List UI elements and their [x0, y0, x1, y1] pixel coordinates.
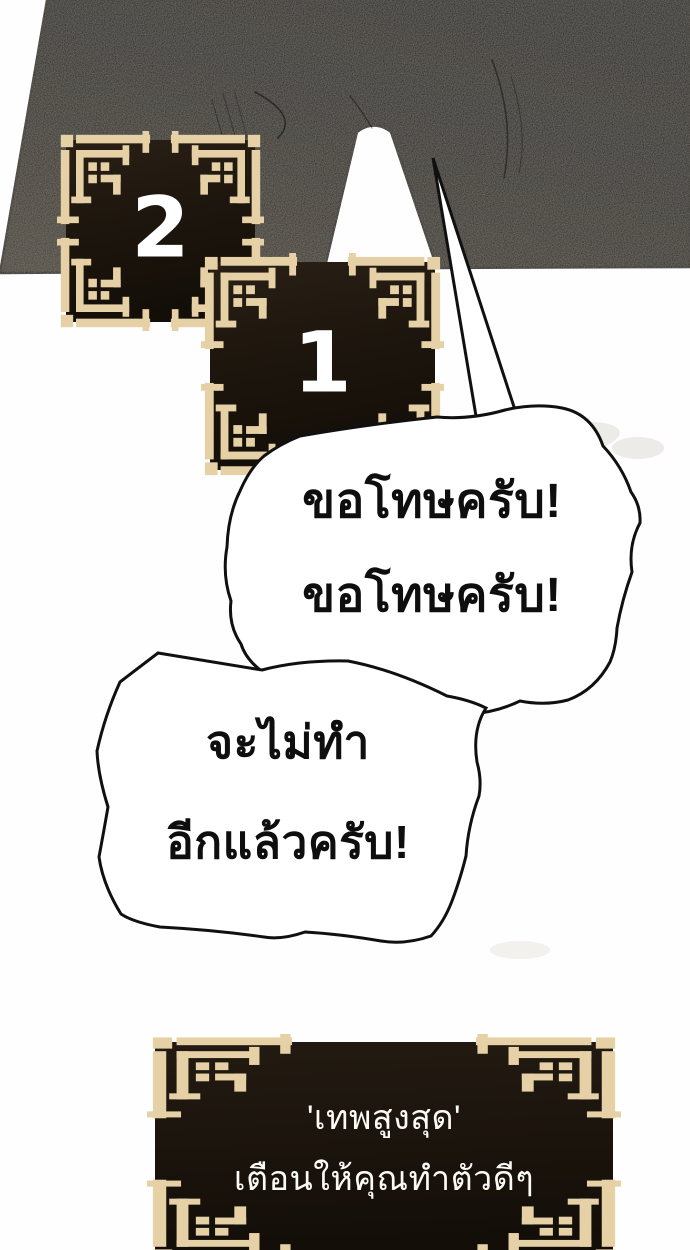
- speech-bubble-2-line-2: อีกแล้วครับ!: [78, 816, 498, 869]
- speech-bubble-2-shape: [97, 653, 486, 942]
- plaque-line-2: เตือนให้คุณทำตัวดีๆ: [155, 1149, 613, 1210]
- system-message-plaque: 'เทพสูงสุด' เตือนให้คุณทำตัวดีๆ: [155, 1042, 613, 1250]
- plaque-line-1: 'เทพสูงสุด': [155, 1088, 613, 1149]
- speech-bubble-tail: [433, 158, 516, 428]
- speech-bubble-1-line-1: ขอโทษครับ!: [212, 474, 652, 529]
- speech-bubble-1-line-2: ขอโทษครับ!: [212, 568, 652, 623]
- speech-bubble-2-line-1: จะไม่ทำ: [78, 716, 498, 769]
- plaque-text: 'เทพสูงสุด' เตือนให้คุณทำตัวดีๆ: [155, 1088, 613, 1210]
- comic-page: 2 1 ขอโทษครับ! ขอโทษครับ! จะไม่ทำ อีกแล้…: [0, 0, 690, 1250]
